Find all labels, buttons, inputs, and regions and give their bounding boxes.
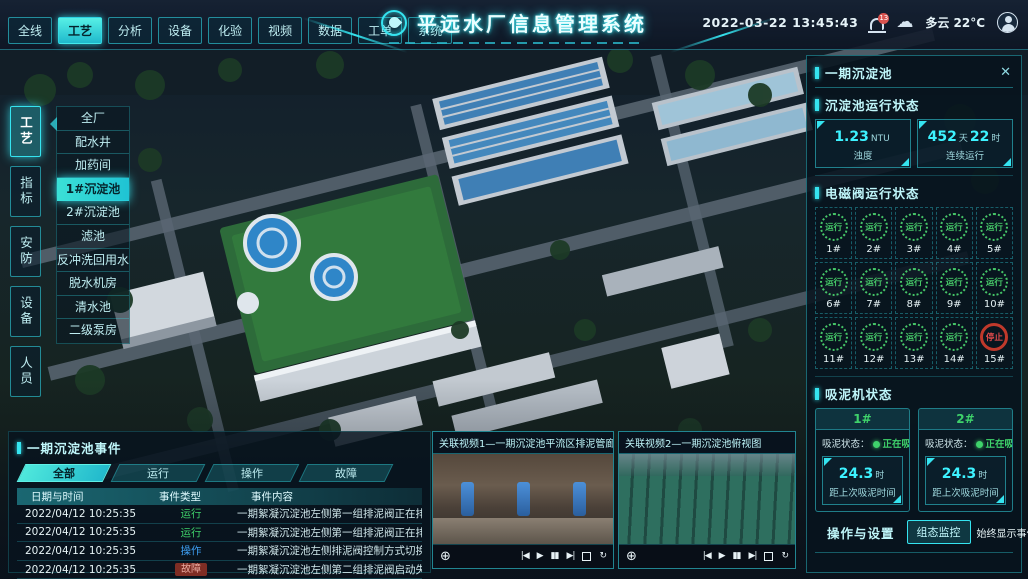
pump-decoration bbox=[461, 482, 474, 516]
stat-label: 距上次吸泥时间 bbox=[928, 485, 1003, 499]
sucker-machine-cards: 1#吸泥状态：正在吸泥24.3时距上次吸泥时间2#吸泥状态：正在吸泥24.3时距… bbox=[815, 408, 1013, 512]
stat-value: 24.3时 bbox=[825, 463, 900, 482]
valve-status-cell[interactable]: 运行14# bbox=[936, 317, 973, 369]
process-menu-item[interactable]: 二级泵房 bbox=[57, 319, 129, 343]
process-menu-item[interactable]: 1#沉淀池 bbox=[57, 178, 129, 202]
events-title: 一期沉淀池事件 bbox=[27, 438, 422, 457]
table-row[interactable]: 2022/04/12 10:25:35运行一期絮凝沉淀池左侧第一组排泥阀正在排泥 bbox=[17, 505, 422, 524]
stat-part: 24.3 bbox=[942, 466, 977, 482]
pause-button[interactable]: ▮▮ bbox=[551, 552, 559, 561]
process-menu-item[interactable]: 反冲洗回用水池 bbox=[57, 249, 129, 273]
valve-label: 4# bbox=[937, 244, 972, 255]
valve-ring-run: 运行 bbox=[900, 268, 928, 296]
video-panel-1: 关联视频1—一期沉淀池平流区排泥管廊 ⊕|◀▶▮▮▶|↻ bbox=[432, 431, 614, 569]
fullscreen-icon[interactable] bbox=[582, 552, 591, 561]
event-type-badge: 故障 bbox=[175, 563, 207, 576]
valve-label: 13# bbox=[896, 354, 931, 365]
run-status-section-header: 沉淀池运行状态 bbox=[815, 95, 1013, 114]
stat-part: 1.23 bbox=[834, 129, 869, 145]
valve-ring-run: 运行 bbox=[820, 323, 848, 351]
run-status-stats: 1.23NTU浊度452天22时连续运行 bbox=[815, 119, 1013, 168]
side-tab[interactable]: 人员 bbox=[10, 346, 41, 397]
app-root: 全线工艺分析设备化验视频数据工单系统 平远水厂信息管理系统 2022-03-22… bbox=[0, 0, 1028, 579]
valve-ring-run: 运行 bbox=[900, 213, 928, 241]
valve-status-cell[interactable]: 停止15# bbox=[976, 317, 1013, 369]
accent-bar bbox=[815, 187, 819, 199]
floor-decoration bbox=[433, 518, 613, 544]
top-tab[interactable]: 视频 bbox=[258, 17, 302, 44]
accent-bar bbox=[17, 442, 21, 454]
datetime-display: 2022-03-22 13:45:43 bbox=[702, 15, 858, 30]
valve-ring-run: 运行 bbox=[900, 323, 928, 351]
valve-label: 11# bbox=[816, 354, 851, 365]
valve-status-cell[interactable]: 运行8# bbox=[895, 262, 932, 314]
valve-status-cell[interactable]: 运行2# bbox=[855, 207, 892, 259]
valve-label: 5# bbox=[977, 244, 1012, 255]
next-button[interactable]: ▶| bbox=[748, 552, 756, 561]
valve-status-cell[interactable]: 运行3# bbox=[895, 207, 932, 259]
valve-label: 1# bbox=[816, 244, 851, 255]
valve-label: 7# bbox=[856, 299, 891, 310]
process-menu-item[interactable]: 加药间 bbox=[57, 154, 129, 178]
process-menu-item[interactable]: 全厂 bbox=[57, 107, 129, 131]
stat-value: 452天22时 bbox=[920, 126, 1010, 145]
video-controls: ⊕|◀▶▮▮▶|↻ bbox=[433, 544, 613, 568]
valve-ring-run: 运行 bbox=[980, 268, 1008, 296]
valve-label: 6# bbox=[816, 299, 851, 310]
section-title: 吸泥机状态 bbox=[825, 384, 1013, 403]
event-time: 2022/04/12 10:25:35 bbox=[17, 564, 145, 576]
app-header: 平远水厂信息管理系统 bbox=[381, 8, 647, 37]
section-title: 沉淀池运行状态 bbox=[825, 95, 1013, 114]
ptz-dpad-icon[interactable]: ⊕ bbox=[626, 550, 637, 563]
weather-text: 多云 22°C bbox=[925, 14, 985, 31]
event-filter-tab[interactable]: 全部 bbox=[17, 464, 112, 482]
page-title: 平远水厂信息管理系统 bbox=[417, 8, 647, 37]
event-time: 2022/04/12 10:25:35 bbox=[17, 545, 145, 557]
detail-panel-header: 一期沉淀池 ✕ bbox=[815, 63, 1013, 88]
events-panel: 一期沉淀池事件 全部运行操作故障 日期与时间事件类型事件内容 2022/04/1… bbox=[8, 431, 431, 573]
process-menu-item[interactable]: 2#沉淀池 bbox=[57, 201, 129, 225]
valve-status-cell[interactable]: 运行11# bbox=[815, 317, 852, 369]
stat-part: 24.3 bbox=[839, 466, 874, 482]
valve-status-cell[interactable]: 运行7# bbox=[855, 262, 892, 314]
valve-ring-run: 运行 bbox=[940, 213, 968, 241]
sucker-stat-box: 24.3时距上次吸泥时间 bbox=[822, 456, 903, 505]
event-content: 一期絮凝沉淀池左侧第一组排泥阀正在排泥 bbox=[237, 506, 422, 521]
video-title: 关联视频2—一期沉淀池俯视图 bbox=[619, 432, 795, 454]
sucker-status-value: 正在吸泥 bbox=[883, 439, 910, 450]
valve-ring-run: 运行 bbox=[980, 213, 1008, 241]
event-filter-tab[interactable]: 操作 bbox=[205, 464, 300, 482]
event-filter-tab[interactable]: 运行 bbox=[111, 464, 206, 482]
pump-decoration bbox=[517, 482, 530, 516]
valve-status-cell[interactable]: 运行9# bbox=[936, 262, 973, 314]
event-filter-tab-label: 操作 bbox=[241, 465, 263, 481]
stat-value: 24.3时 bbox=[928, 463, 1003, 482]
next-button[interactable]: ▶| bbox=[566, 552, 574, 561]
table-column-header: 日期与时间 bbox=[17, 489, 145, 504]
valve-label: 10# bbox=[977, 299, 1012, 310]
event-filter-tab-label: 运行 bbox=[147, 465, 169, 481]
play-button[interactable]: ▶ bbox=[537, 552, 543, 561]
ops-section: 操作与设置 组态监控 始终显示事件： bbox=[815, 520, 1013, 544]
run-stat-box: 1.23NTU浊度 bbox=[815, 119, 911, 168]
ptz-dpad-icon[interactable]: ⊕ bbox=[440, 550, 451, 563]
weather-cloud-icon: ☁ bbox=[896, 14, 913, 31]
stat-part: 时 bbox=[978, 471, 987, 481]
event-table-body: 2022/04/12 10:25:35运行一期絮凝沉淀池左侧第一组排泥阀正在排泥… bbox=[17, 505, 422, 579]
sucker-status-line: 吸泥状态：正在吸泥 bbox=[822, 436, 903, 450]
side-tab[interactable]: 工艺 bbox=[10, 106, 41, 157]
valve-ring-run: 运行 bbox=[940, 268, 968, 296]
valve-ring-run: 运行 bbox=[860, 213, 888, 241]
section-title: 电磁阀运行状态 bbox=[825, 183, 1013, 202]
video-title: 关联视频1—一期沉淀池平流区排泥管廊 bbox=[433, 432, 613, 454]
loop-icon[interactable]: ↻ bbox=[599, 552, 606, 561]
top-tab[interactable]: 全线 bbox=[8, 17, 52, 44]
valve-ring-stop: 停止 bbox=[980, 323, 1008, 351]
table-row[interactable]: 2022/04/12 10:25:35故障一期絮凝沉淀池左侧第二组排泥阀启动失败 bbox=[17, 561, 422, 579]
process-menu-item[interactable]: 配水井 bbox=[57, 131, 129, 155]
valve-label: 15# bbox=[977, 354, 1012, 365]
event-content: 一期絮凝沉淀池左侧第二组排泥阀启动失败 bbox=[237, 562, 422, 577]
prev-button[interactable]: |◀ bbox=[703, 552, 711, 561]
stat-part: 时 bbox=[875, 471, 884, 481]
valve-status-cell[interactable]: 运行1# bbox=[815, 207, 852, 259]
stat-part: NTU bbox=[871, 134, 890, 144]
event-content: 一期絮凝沉淀池左侧排泥阀控制方式切换为手动 bbox=[237, 543, 422, 558]
process-menu-item[interactable]: 清水池 bbox=[57, 296, 129, 320]
table-column-header: 事件内容 bbox=[237, 489, 422, 504]
run-stat-box: 452天22时连续运行 bbox=[917, 119, 1013, 168]
top-tab[interactable]: 设备 bbox=[158, 17, 202, 44]
deck-decoration bbox=[619, 454, 795, 476]
detail-panel-title: 一期沉淀池 bbox=[825, 63, 998, 82]
stat-part: 天 bbox=[959, 134, 968, 144]
event-filter-tab[interactable]: 故障 bbox=[299, 464, 394, 482]
side-tab[interactable]: 设备 bbox=[10, 286, 41, 337]
stat-part: 时 bbox=[991, 134, 1000, 144]
process-menu-item[interactable]: 脱水机房 bbox=[57, 272, 129, 296]
process-menu-item[interactable]: 滤池 bbox=[57, 225, 129, 249]
video-thumbnail[interactable] bbox=[619, 454, 795, 544]
top-bar: 全线工艺分析设备化验视频数据工单系统 平远水厂信息管理系统 2022-03-22… bbox=[0, 0, 1028, 50]
side-category-tabs: 工艺指标安防设备人员 bbox=[10, 106, 41, 397]
section-divider bbox=[815, 175, 1013, 176]
event-type: 运行 bbox=[145, 506, 237, 521]
fullscreen-icon[interactable] bbox=[764, 552, 773, 561]
stat-label: 连续运行 bbox=[920, 148, 1010, 162]
prev-button[interactable]: |◀ bbox=[521, 552, 529, 561]
event-time: 2022/04/12 10:25:35 bbox=[17, 508, 145, 520]
top-tab[interactable]: 分析 bbox=[108, 17, 152, 44]
valve-label: 9# bbox=[937, 299, 972, 310]
section-title: 操作与设置 bbox=[827, 523, 895, 542]
valve-ring-run: 运行 bbox=[940, 323, 968, 351]
side-tab[interactable]: 安防 bbox=[10, 226, 41, 277]
sucker-stat-box: 24.3时距上次吸泥时间 bbox=[925, 456, 1006, 505]
toggle-label: 始终显示事件： bbox=[977, 525, 1028, 540]
event-filter-tabs: 全部运行操作故障 bbox=[21, 464, 422, 482]
top-tab[interactable]: 工艺 bbox=[58, 17, 102, 44]
valve-label: 12# bbox=[856, 354, 891, 365]
valve-label: 3# bbox=[896, 244, 931, 255]
valve-status-cell[interactable]: 运行13# bbox=[895, 317, 932, 369]
video-controls: ⊕|◀▶▮▮▶|↻ bbox=[619, 544, 795, 568]
play-button[interactable]: ▶ bbox=[719, 552, 725, 561]
top-right-info: 2022-03-22 13:45:43 13 ☁ 多云 22°C bbox=[702, 12, 1018, 33]
event-type: 操作 bbox=[145, 543, 237, 558]
hud-dashed-line bbox=[389, 42, 639, 44]
status-dot-icon bbox=[873, 441, 880, 448]
video-panel-2: 关联视频2—一期沉淀池俯视图 ⊕|◀▶▮▮▶|↻ bbox=[618, 431, 796, 569]
video-thumbnail[interactable] bbox=[433, 454, 613, 544]
event-type: 故障 bbox=[145, 563, 237, 576]
accent-bar bbox=[815, 67, 819, 79]
valve-status-cell[interactable]: 运行10# bbox=[976, 262, 1013, 314]
table-column-header: 事件类型 bbox=[145, 489, 237, 504]
sucker-id: 2# bbox=[919, 409, 1012, 430]
valve-ring-run: 运行 bbox=[860, 268, 888, 296]
detail-panel: 一期沉淀池 ✕ 沉淀池运行状态 1.23NTU浊度452天22时连续运行 电磁阀… bbox=[806, 55, 1022, 573]
table-row[interactable]: 2022/04/12 10:25:35运行一期絮凝沉淀池左侧第一组排泥阀正在排泥 bbox=[17, 524, 422, 543]
section-divider bbox=[815, 552, 1013, 553]
top-tab[interactable]: 化验 bbox=[208, 17, 252, 44]
sucker-status-label: 吸泥状态： bbox=[822, 439, 870, 450]
valve-label: 8# bbox=[896, 299, 931, 310]
valve-ring-run: 运行 bbox=[820, 213, 848, 241]
process-menu: 全厂配水井加药间1#沉淀池2#沉淀池滤池反冲洗回用水池脱水机房清水池二级泵房 bbox=[56, 106, 130, 344]
valve-status-cell[interactable]: 运行5# bbox=[976, 207, 1013, 259]
sucker-card: 2#吸泥状态：正在吸泥24.3时距上次吸泥时间 bbox=[918, 408, 1013, 512]
event-table-header: 日期与时间事件类型事件内容 bbox=[17, 488, 422, 505]
valve-label: 14# bbox=[937, 354, 972, 365]
sucker-status-line: 吸泥状态：正在吸泥 bbox=[925, 436, 1006, 450]
section-divider bbox=[815, 376, 1013, 377]
table-row[interactable]: 2022/04/12 10:25:35操作一期絮凝沉淀池左侧排泥阀控制方式切换为… bbox=[17, 542, 422, 561]
event-type: 运行 bbox=[145, 525, 237, 540]
sucker-status-label: 吸泥状态： bbox=[925, 439, 973, 450]
close-icon[interactable]: ✕ bbox=[998, 65, 1013, 80]
pause-button[interactable]: ▮▮ bbox=[733, 552, 741, 561]
event-time: 2022/04/12 10:25:35 bbox=[17, 526, 145, 538]
valves-section-header: 电磁阀运行状态 bbox=[815, 183, 1013, 202]
loop-icon[interactable]: ↻ bbox=[781, 552, 788, 561]
event-filter-tab-label: 全部 bbox=[53, 465, 75, 481]
valve-status-grid: 运行1#运行2#运行3#运行4#运行5#运行6#运行7#运行8#运行9#运行10… bbox=[815, 207, 1013, 369]
scada-monitor-button[interactable]: 组态监控 bbox=[907, 520, 971, 544]
stat-value: 1.23NTU bbox=[818, 126, 908, 145]
valve-status-cell[interactable]: 运行6# bbox=[815, 262, 852, 314]
valve-status-cell[interactable]: 运行4# bbox=[936, 207, 973, 259]
stat-label: 浊度 bbox=[818, 148, 908, 162]
user-avatar[interactable] bbox=[997, 12, 1018, 33]
accent-bar bbox=[815, 99, 819, 111]
notification-badge: 13 bbox=[878, 13, 889, 24]
stat-part: 452 bbox=[928, 129, 957, 145]
accent-bar bbox=[815, 388, 819, 400]
pump-decoration bbox=[573, 482, 586, 516]
sucker-card: 1#吸泥状态：正在吸泥24.3时距上次吸泥时间 bbox=[815, 408, 910, 512]
valve-label: 2# bbox=[856, 244, 891, 255]
stat-part: 22 bbox=[970, 129, 989, 145]
event-filter-tab-label: 故障 bbox=[335, 465, 357, 481]
waterworks-logo-icon bbox=[381, 10, 407, 36]
status-dot-icon bbox=[976, 441, 983, 448]
valve-ring-run: 运行 bbox=[820, 268, 848, 296]
sucker-status-value: 正在吸泥 bbox=[986, 439, 1013, 450]
valve-ring-run: 运行 bbox=[860, 323, 888, 351]
notification-bell-icon[interactable]: 13 bbox=[870, 18, 884, 30]
event-content: 一期絮凝沉淀池左侧第一组排泥阀正在排泥 bbox=[237, 525, 422, 540]
stat-label: 距上次吸泥时间 bbox=[825, 485, 900, 499]
valve-status-cell[interactable]: 运行12# bbox=[855, 317, 892, 369]
sucker-id: 1# bbox=[816, 409, 909, 430]
sucker-body: 吸泥状态：正在吸泥24.3时距上次吸泥时间 bbox=[919, 430, 1012, 511]
sucker-section-header: 吸泥机状态 bbox=[815, 384, 1013, 403]
sucker-body: 吸泥状态：正在吸泥24.3时距上次吸泥时间 bbox=[816, 430, 909, 511]
events-header: 一期沉淀池事件 bbox=[17, 438, 422, 457]
side-tab[interactable]: 指标 bbox=[10, 166, 41, 217]
